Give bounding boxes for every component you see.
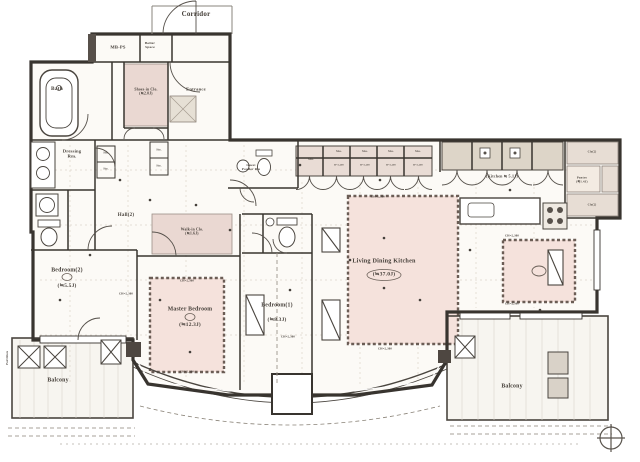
toilet xyxy=(279,227,295,247)
compass-icon xyxy=(597,424,625,452)
floor-plan-page: CorridorMB-PSBoiler SpaceBathShoes-in Cl… xyxy=(0,0,640,462)
toilet xyxy=(258,159,271,176)
stove xyxy=(543,203,567,229)
floor-plan-drawing xyxy=(0,0,640,462)
kitchen-sink xyxy=(468,203,494,217)
toilet xyxy=(41,228,57,246)
powder-sink xyxy=(237,160,249,172)
